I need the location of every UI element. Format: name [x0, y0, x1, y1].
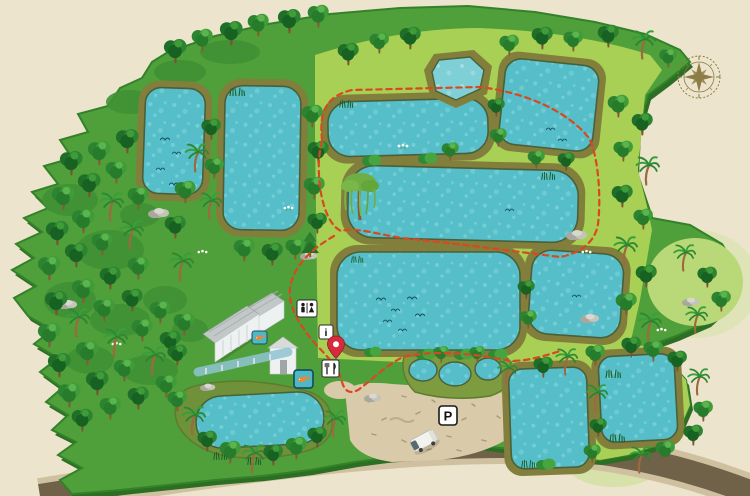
restaurant-marker[interactable]: [322, 360, 339, 377]
lake-second: [216, 78, 309, 238]
info-label: i: [325, 327, 328, 339]
map-canvas: i P: [0, 0, 750, 496]
parking-marker[interactable]: P: [439, 406, 457, 425]
lake-right-center: [520, 241, 633, 346]
fish-shop-marker-large[interactable]: [294, 370, 313, 388]
pond-bottom-left: [175, 381, 332, 458]
lake-top-left: [135, 80, 213, 203]
parking-label: P: [444, 409, 453, 424]
location-pin-dot: [333, 341, 339, 347]
park-map: i P: [0, 0, 750, 496]
info-marker[interactable]: i: [319, 325, 333, 339]
toilets-marker[interactable]: [297, 300, 317, 317]
lake-central: [330, 245, 527, 357]
lake-row-b: [340, 158, 586, 250]
fish-shop-marker-small[interactable]: [252, 331, 267, 344]
lake-top-right: [490, 50, 608, 161]
